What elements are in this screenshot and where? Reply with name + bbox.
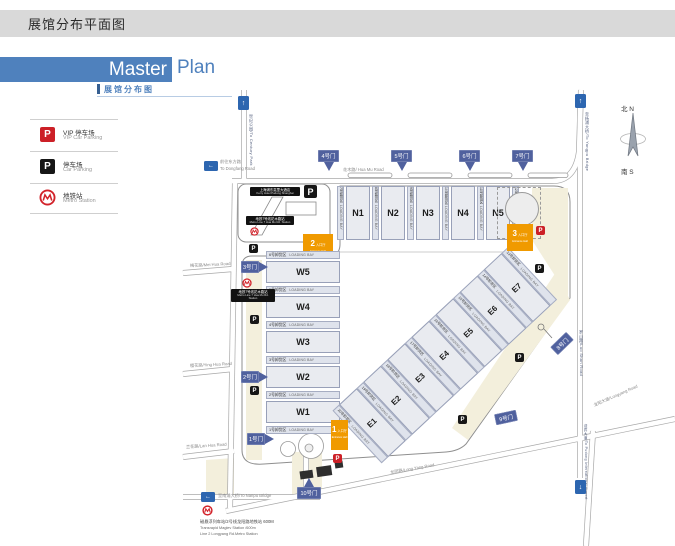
parking-icon: P xyxy=(304,185,317,198)
banner-subtitle: 展馆分布图 xyxy=(104,84,154,95)
metro-line7-station-label: 地铁7号线花木路站Metro Line 7 Hua Mu Rd. Station xyxy=(231,289,275,302)
maglev-note-en2: Line 2 Longyang Rd.Metro Station xyxy=(200,532,258,536)
hall-w4: W4 xyxy=(266,296,340,318)
vip-parking-icon: P xyxy=(40,127,55,142)
banner-master: Master xyxy=(0,57,172,82)
road-label-nanpu: 至南浦大桥/To Nanpu Bridge xyxy=(218,493,271,499)
arrow-up-icon xyxy=(304,478,314,487)
page-title: 展馆分布平面图 xyxy=(28,14,126,33)
legend-divider xyxy=(30,151,118,152)
compass-south-label: 南 S xyxy=(621,166,634,176)
parking-icon: P xyxy=(249,244,258,253)
gate-1-marker: 1号门 xyxy=(247,433,274,445)
arrow-down-icon: ↓ xyxy=(575,480,586,494)
road-label-dongfang-zh: 前往东方路 xyxy=(220,159,241,165)
round-building xyxy=(505,192,539,226)
gate-7-marker: 7号门 xyxy=(512,150,533,171)
road-label-luoshan: 罗山路/Luo Shan Road xyxy=(578,330,584,376)
parking-icon: P xyxy=(535,264,544,273)
road-label-century-park: 世纪公园/To Century Park xyxy=(248,114,254,166)
vip-parking-icon: P xyxy=(333,454,342,463)
gate-4-marker: 4号门 xyxy=(318,150,339,171)
road-label-yangpu: 至杨浦大桥/To Yangpu Bridge xyxy=(584,112,590,171)
hall-w3: W3 xyxy=(266,331,340,353)
arrow-down-icon xyxy=(465,162,475,171)
compass-needle xyxy=(619,112,647,169)
arrow-up-icon: ↑ xyxy=(238,96,249,110)
legend-divider xyxy=(30,213,118,214)
hall-n1: N1 xyxy=(346,186,370,240)
loading-bay-4: 4号卸货区LOADING BAY xyxy=(266,321,340,329)
hall-w5: W5 xyxy=(266,261,340,283)
metro-icon xyxy=(202,505,213,516)
parking-icon: P xyxy=(250,315,259,324)
arrow-up-icon: ↑ xyxy=(575,94,586,108)
metro-icon xyxy=(39,189,56,206)
road-label-dongfang-en: To Dongfang Road xyxy=(220,166,255,171)
banner-subtitle-tick xyxy=(97,84,100,94)
gate-5-marker: 5号门 xyxy=(391,150,412,171)
legend-vip-label-en: VIP Car Parking xyxy=(63,135,102,141)
banner-plan: Plan xyxy=(177,57,215,79)
hall-n3: N3 xyxy=(416,186,440,240)
metro-icon xyxy=(250,227,259,236)
maglev-note-zh: 磁悬浮列车站/2号线龙阳路地铁站 600M xyxy=(200,519,274,525)
banner-subtitle-rule xyxy=(97,96,232,97)
hall-n2: N2 xyxy=(381,186,405,240)
arrow-right-icon xyxy=(259,262,268,272)
arrow-left-icon: ← xyxy=(201,492,215,502)
loading-bay-3: 3号卸货区LOADING BAY xyxy=(266,356,340,364)
hall-w1: W1 xyxy=(266,401,340,423)
master-plan-page: 展馆分布平面图 Master Plan 展馆分布图 P VIP 停车场 VIP … xyxy=(0,0,675,546)
parking-icon: P xyxy=(40,159,55,174)
kerry-hotel-label: 上海浦东嘉里大酒店Kerry Hotel Pudong Shanghai xyxy=(250,187,300,196)
gate-6-marker: 6号门 xyxy=(459,150,480,171)
parking-icon: P xyxy=(250,386,259,395)
loading-bay-9: 9号卸货区LOADING BAY xyxy=(407,186,414,240)
arrow-down-icon xyxy=(397,162,407,171)
gate-3-marker: 3号门 xyxy=(241,261,268,273)
entrance-hall-1: 1入口厅 Entrance Hall xyxy=(331,420,348,450)
loading-bay-1: 1号卸货区LOADING BAY xyxy=(266,426,340,434)
parking-icon: P xyxy=(458,415,467,424)
loading-bay-10: 10号卸货区LOADING BAY xyxy=(442,186,449,240)
loading-bay-8: 8号卸货区LOADING BAY xyxy=(372,186,379,240)
parking-icon: P xyxy=(515,353,524,362)
legend-metro-label-en: Metro Station xyxy=(63,198,96,204)
metro-icon xyxy=(242,278,252,288)
arrow-right-icon xyxy=(259,372,268,382)
arrow-left-icon: ← xyxy=(204,161,218,171)
loading-bay-7: 7号卸货区LOADING BAY xyxy=(337,186,344,240)
arrow-down-icon xyxy=(518,162,528,171)
loading-bay-6: 6号卸货区LOADING BAY xyxy=(266,251,340,259)
arrow-right-icon xyxy=(265,434,274,444)
legend-parking-label-en: Car Parking xyxy=(63,167,92,173)
road-label-huamu: 花木路/ Hua Mu Road xyxy=(343,167,384,173)
arrow-down-icon xyxy=(324,162,334,171)
maglev-note-en1: Transrapid Maglev Station /600m xyxy=(200,526,256,530)
loading-bay-2: 2号卸货区LOADING BAY xyxy=(266,391,340,399)
page-header: 展馆分布平面图 xyxy=(0,10,675,37)
metro-line7-station-label: 地铁7号线花木路站Metro Line 7 Hua Mu Rd. Station xyxy=(246,216,294,225)
hall-w2: W2 xyxy=(266,366,340,388)
gate-10-marker: 10号门 xyxy=(297,478,321,499)
legend-divider xyxy=(30,119,118,120)
loading-bay-11: 11号卸货区LOADING BAY xyxy=(477,186,484,240)
gate-2-marker: 2号门 xyxy=(241,371,268,383)
loading-bay-5: 5号卸货区LOADING BAY xyxy=(266,286,340,294)
vip-parking-icon: P xyxy=(536,226,545,235)
entrance-hall-2: 2入口厅 Entrance Hall xyxy=(303,234,333,251)
legend-divider xyxy=(30,183,118,184)
hall-n4: N4 xyxy=(451,186,475,240)
entrance-hall-3: 3入口厅 Entrance Hall xyxy=(507,224,533,251)
